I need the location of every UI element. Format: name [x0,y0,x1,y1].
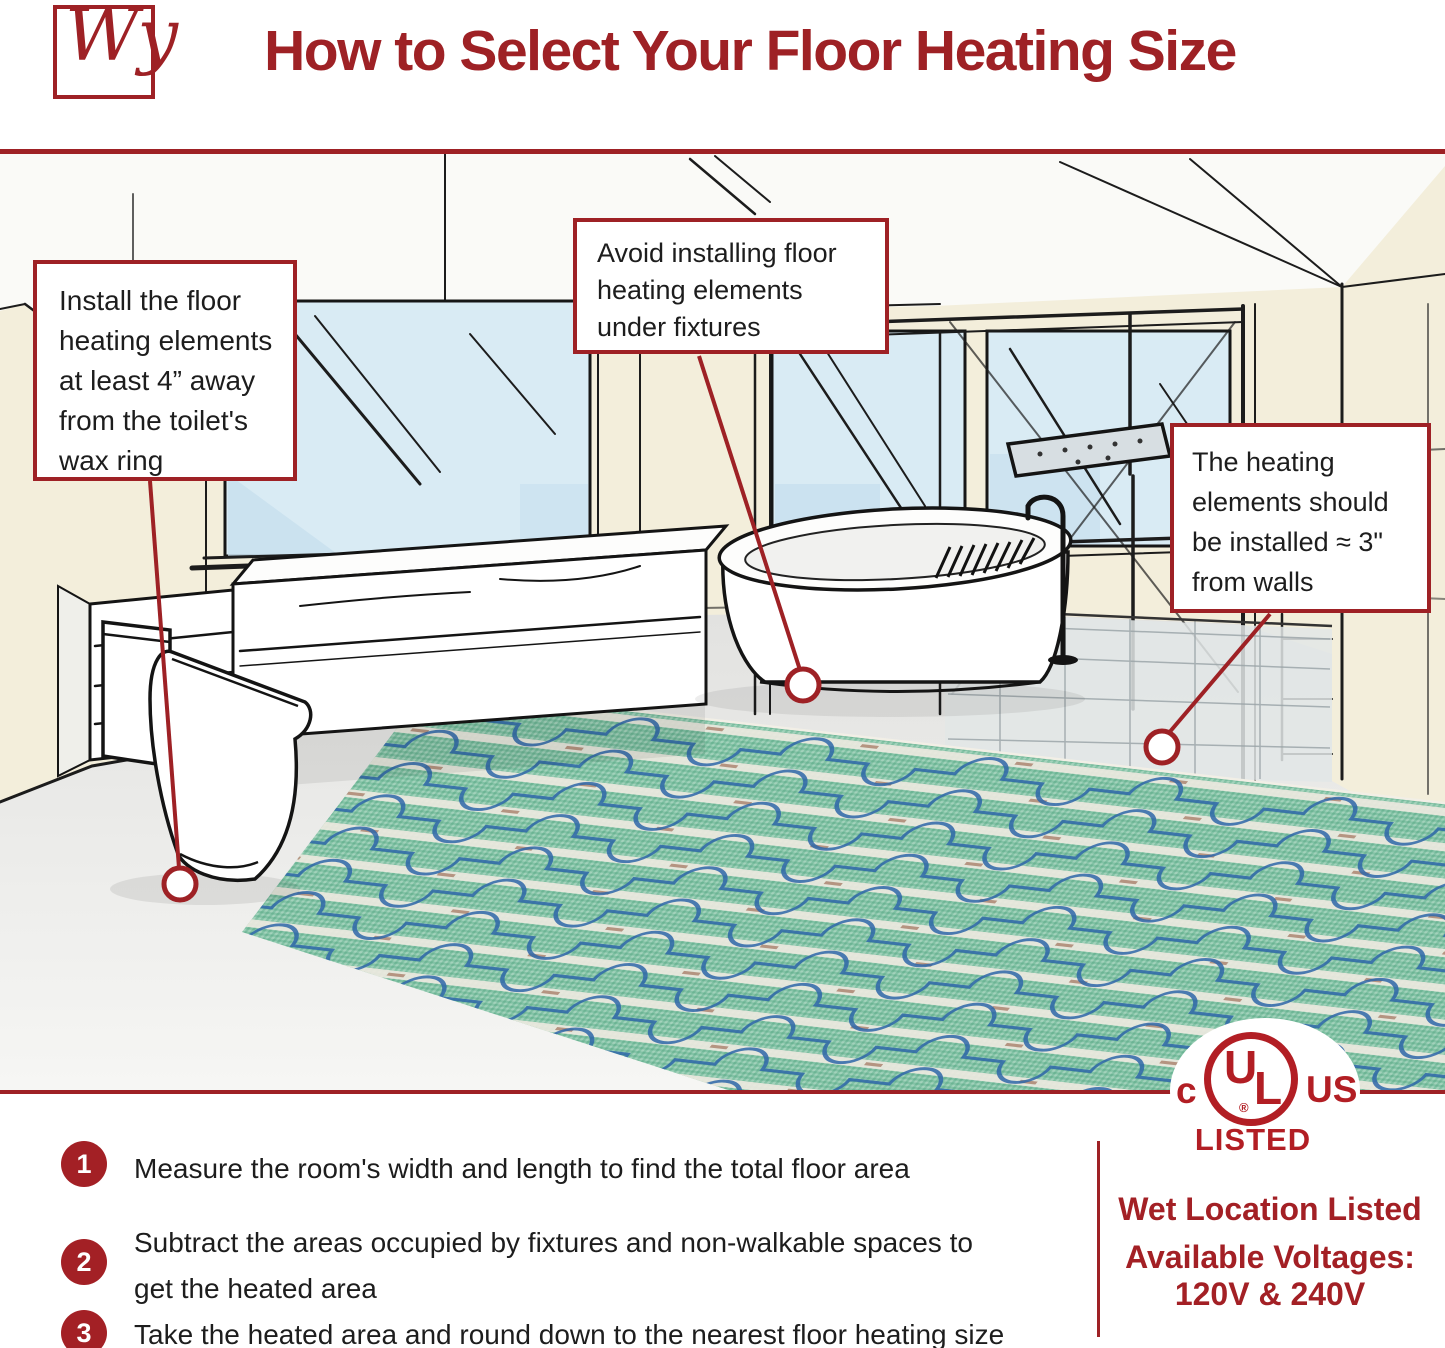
ul-registered-icon: ® [1239,1100,1249,1115]
ul-canada-label: c [1176,1070,1197,1112]
wall-marker-icon [1146,731,1178,763]
brand-logo: Wy [53,5,155,99]
wet-location-label: Wet Location Listed [1105,1191,1435,1228]
callout-wall-clearance: The heating elements should be installed… [1170,423,1431,613]
callout-avoid-fixtures: Avoid installing floor heating elements … [573,218,889,354]
infographic-page: Wy How to Select Your Floor Heating Size [0,0,1445,1348]
step-2-text: Subtract the areas occupied by fixtures … [134,1220,1134,1312]
step-2-badge: 2 [61,1239,107,1285]
page-title: How to Select Your Floor Heating Size [175,18,1325,84]
toilet-marker-icon [164,868,196,900]
step-1-badge: 1 [61,1141,107,1187]
vertical-divider [1097,1141,1100,1337]
step-3-badge: 3 [61,1310,107,1348]
ul-letter-l: L [1254,1061,1282,1115]
step-3-text: Take the heated area and round down to t… [134,1312,1134,1348]
callout-toilet-clearance: Install the floor heating elements at le… [33,260,297,481]
brand-logo-text: Wy [65,0,178,71]
voltages-value: 120V & 240V [1105,1276,1435,1313]
ul-us-label: US [1306,1069,1357,1111]
step-1-text: Measure the room's width and length to f… [134,1146,1134,1192]
ul-letter-u: U [1224,1040,1257,1094]
ul-listed-label: LISTED [1178,1122,1328,1158]
bathtub-marker-icon [787,669,819,701]
top-frame-line [0,149,1445,154]
voltages-label: Available Voltages: [1105,1239,1435,1276]
